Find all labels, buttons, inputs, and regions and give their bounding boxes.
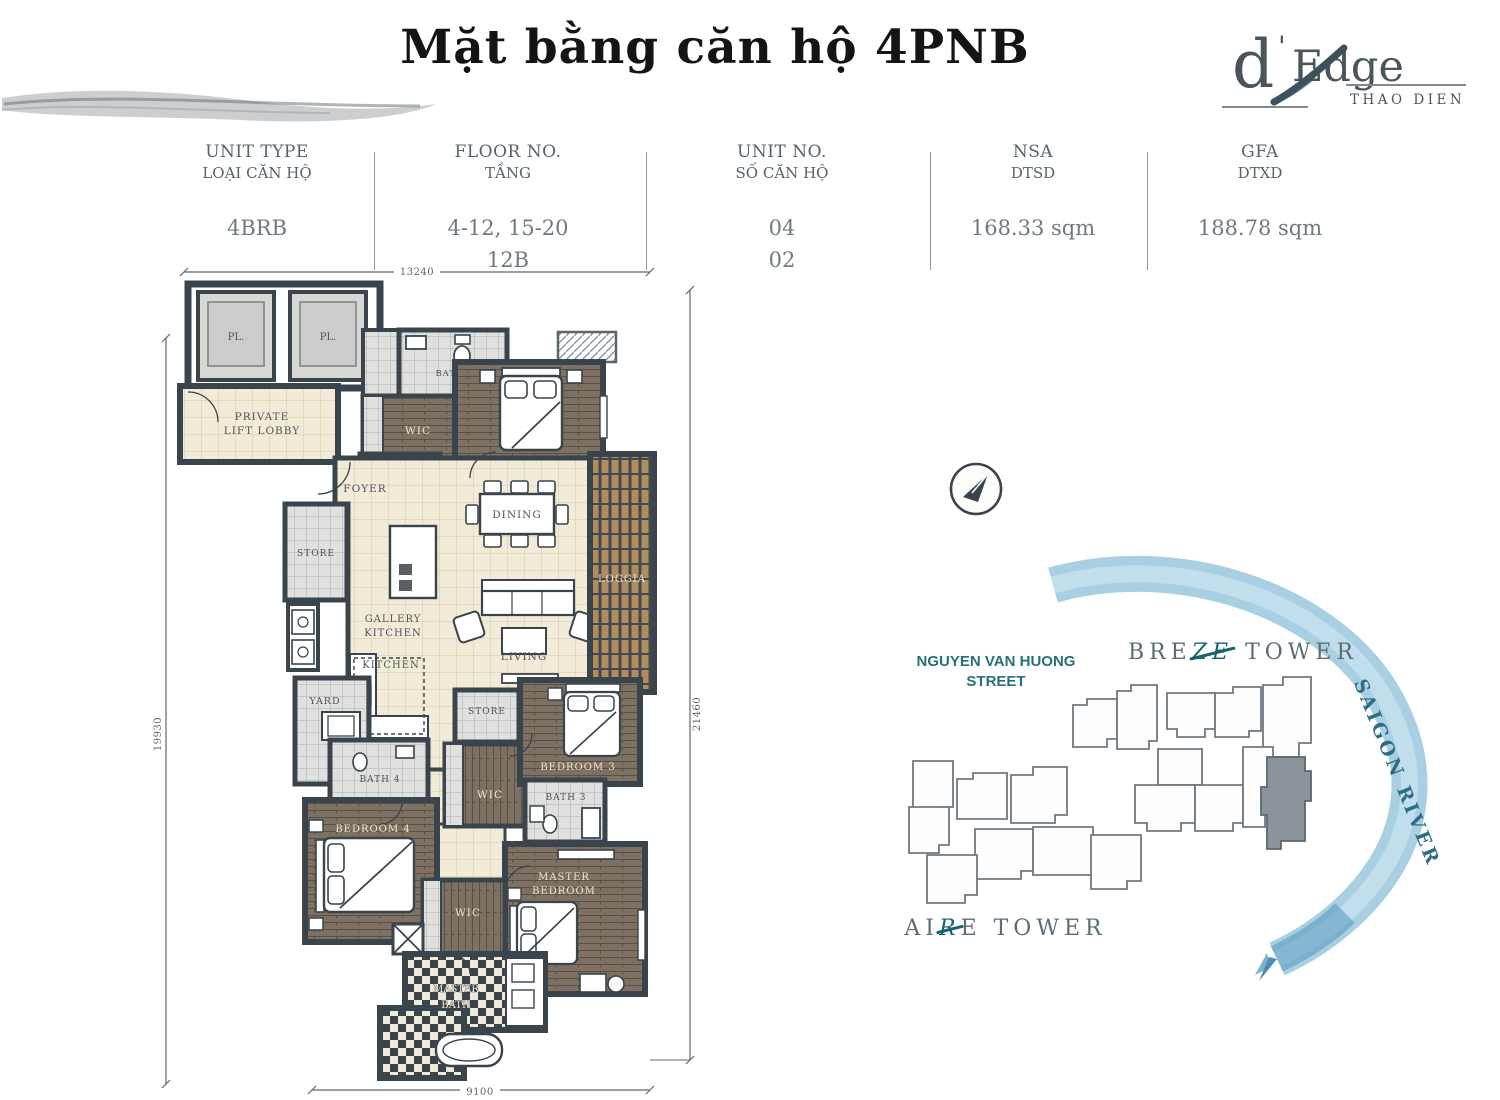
pillow bbox=[568, 696, 588, 711]
col-label-vn: DTXD bbox=[1160, 164, 1360, 182]
street-label: NGUYEN VAN HUONG STREET bbox=[890, 652, 1102, 691]
room-wic-mid: WIC bbox=[445, 744, 527, 826]
bed-headboard bbox=[316, 840, 324, 912]
yard-label: YARD bbox=[308, 696, 340, 707]
brand-logo: d ' Edge THAO DIEN bbox=[1222, 18, 1472, 128]
nightstand bbox=[309, 820, 323, 832]
nightstand bbox=[309, 918, 323, 930]
sink bbox=[530, 806, 544, 822]
pillow bbox=[328, 844, 344, 872]
master-bath-label-2: BATH bbox=[441, 1000, 471, 1011]
toilet bbox=[543, 815, 557, 833]
header-col-unit-no: UNIT NO. SỐ CĂN HỘ 04 02 bbox=[682, 142, 882, 272]
wic-mid-label: WIC bbox=[477, 789, 503, 801]
logo-subtitle: THAO DIEN bbox=[1350, 92, 1465, 108]
col-value: 4-12, 15-20 bbox=[408, 216, 608, 240]
room-master-bath: MASTER BATH bbox=[380, 954, 545, 1078]
pillow bbox=[521, 907, 536, 931]
brush-stroke-decoration bbox=[0, 80, 440, 140]
shelf bbox=[558, 850, 614, 859]
logo-rule-right bbox=[1346, 84, 1466, 86]
highlighted-unit bbox=[1261, 757, 1311, 849]
pillow bbox=[328, 876, 344, 904]
aire-post2: TOWER bbox=[994, 916, 1107, 941]
room-bedroom-3: BEDROOM 3 bbox=[520, 680, 640, 784]
col-label-vn: LOẠI CĂN HỘ bbox=[157, 164, 357, 182]
col-value: 4BRB bbox=[157, 216, 357, 240]
header-divider bbox=[374, 152, 375, 270]
col-label: FLOOR NO. bbox=[408, 142, 608, 162]
sink bbox=[396, 746, 414, 758]
wic-top-label: WIC bbox=[405, 425, 431, 437]
shaft-box bbox=[393, 924, 423, 954]
living-label: LIVING bbox=[501, 651, 547, 663]
col-label: UNIT NO. bbox=[682, 142, 882, 162]
nightstand bbox=[480, 370, 495, 383]
dim-bottom: 9100 bbox=[466, 1087, 493, 1098]
window bbox=[600, 396, 607, 438]
breeze-post: TOWER bbox=[1245, 640, 1358, 665]
lobby-label-1: PRIVATE bbox=[235, 411, 290, 423]
bedroom3-label: BEDROOM 3 bbox=[540, 762, 615, 773]
floor-plan: 13240 19930 21460 9100 PL. PL. PRIVATE L… bbox=[150, 264, 715, 1100]
toilet bbox=[353, 753, 367, 771]
store-mid-label: STORE bbox=[468, 707, 506, 717]
aire-tower-label: AIRE TOWER bbox=[898, 916, 1113, 941]
sink bbox=[406, 336, 426, 349]
col-label: UNIT TYPE bbox=[157, 142, 357, 162]
street-line-1: NGUYEN VAN HUONG bbox=[890, 652, 1102, 672]
bath3-label: BATH 3 bbox=[545, 793, 586, 803]
col-label: GFA bbox=[1160, 142, 1360, 162]
bedroom4-label: BEDROOM 4 bbox=[335, 824, 410, 835]
room-store-left: STORE bbox=[285, 504, 347, 600]
dim-right: 21460 bbox=[692, 697, 703, 731]
pillow bbox=[594, 696, 614, 711]
bath4-label: BATH 4 bbox=[359, 775, 400, 785]
col-value: 04 bbox=[682, 216, 882, 240]
col-value: 188.78 sqm bbox=[1160, 216, 1360, 240]
breeze-accent: ZE bbox=[1192, 640, 1233, 665]
aire-pre: AI bbox=[904, 916, 939, 941]
room-wic-bottom: WIC bbox=[423, 880, 505, 962]
lobby-label-2: LIFT LOBBY bbox=[224, 425, 301, 437]
room-private-lift-lobby: PRIVATE LIFT LOBBY bbox=[180, 386, 338, 462]
lift-label: PL. bbox=[228, 332, 245, 343]
desk bbox=[580, 974, 606, 992]
kitchen-label: KITCHEN bbox=[362, 660, 420, 671]
room-loggia: LOGGIA bbox=[590, 454, 654, 692]
header-col-unit-type: UNIT TYPE LOẠI CĂN HỘ 4BRB bbox=[157, 142, 357, 240]
bed-headboard bbox=[502, 368, 560, 376]
col-label-vn: DTSD bbox=[933, 164, 1133, 182]
street-line-2: STREET bbox=[890, 672, 1102, 692]
lift-label: PL. bbox=[320, 332, 337, 343]
dining-label: DINING bbox=[492, 509, 541, 521]
header-divider bbox=[1147, 152, 1148, 270]
header-col-gfa: GFA DTXD 188.78 sqm bbox=[1160, 142, 1360, 240]
window bbox=[638, 910, 645, 960]
breeze-tower-footprints bbox=[1073, 677, 1311, 849]
chair bbox=[608, 976, 624, 992]
wic-bottom-label: WIC bbox=[455, 907, 481, 919]
col-label-vn: SỐ CĂN HỘ bbox=[682, 164, 882, 182]
header-col-nsa: NSA DTSD 168.33 sqm bbox=[933, 142, 1133, 240]
bed-headboard bbox=[566, 684, 620, 692]
aire-tower-footprints bbox=[909, 761, 1141, 903]
dim-top: 13240 bbox=[400, 267, 434, 278]
page-title: Mặt bằng căn hộ 4PNB bbox=[0, 20, 1430, 75]
room-bath-4: BATH 4 bbox=[330, 740, 428, 802]
breeze-tower-label: BREZE TOWER bbox=[1118, 640, 1368, 665]
bathtub bbox=[582, 808, 600, 838]
nightstand bbox=[567, 370, 582, 383]
brochure-page: Mặt bằng căn hộ 4PNB d ' Edge THAO DIEN … bbox=[0, 0, 1500, 1100]
nightstand bbox=[548, 688, 562, 700]
header-divider bbox=[646, 152, 647, 270]
col-label: NSA bbox=[933, 142, 1133, 162]
col-label-vn: TẦNG bbox=[408, 164, 608, 182]
room-bath-3: BATH 3 bbox=[525, 780, 605, 842]
aire-post: E bbox=[961, 916, 982, 941]
dim-left: 19930 bbox=[153, 717, 164, 751]
loggia-label: LOGGIA bbox=[598, 574, 646, 585]
appliance-strip bbox=[288, 604, 318, 670]
master-label-2: BEDROOM bbox=[532, 886, 596, 897]
header-divider bbox=[930, 152, 931, 270]
master-label-1: MASTER bbox=[538, 872, 590, 883]
gallery-kitchen-label-2: KITCHEN bbox=[364, 628, 422, 639]
kitchen-island bbox=[390, 526, 436, 598]
store-left-label: STORE bbox=[297, 549, 335, 559]
aire-accent: R bbox=[939, 916, 961, 941]
elevator-block: PL. PL. bbox=[188, 284, 380, 388]
gallery-kitchen-label-1: GALLERY bbox=[365, 614, 422, 625]
breeze-pre: BRE bbox=[1128, 640, 1192, 665]
foyer-label: FOYER bbox=[343, 483, 386, 495]
logo-brush-icon bbox=[1268, 44, 1352, 110]
compass-icon bbox=[947, 460, 1005, 518]
room-bedroom-4: BEDROOM 4 bbox=[305, 800, 437, 942]
closet-strip bbox=[363, 330, 399, 396]
col-value: 168.33 sqm bbox=[933, 216, 1133, 240]
pillow bbox=[505, 381, 527, 398]
header-col-floor-no: FLOOR NO. TẦNG 4-12, 15-20 12B bbox=[408, 142, 608, 272]
pillow bbox=[534, 381, 556, 398]
room-store-mid: STORE bbox=[455, 690, 519, 742]
nightstand bbox=[508, 888, 521, 900]
master-bath-label-1: MASTER bbox=[433, 984, 479, 995]
toilet-tank bbox=[455, 335, 470, 344]
